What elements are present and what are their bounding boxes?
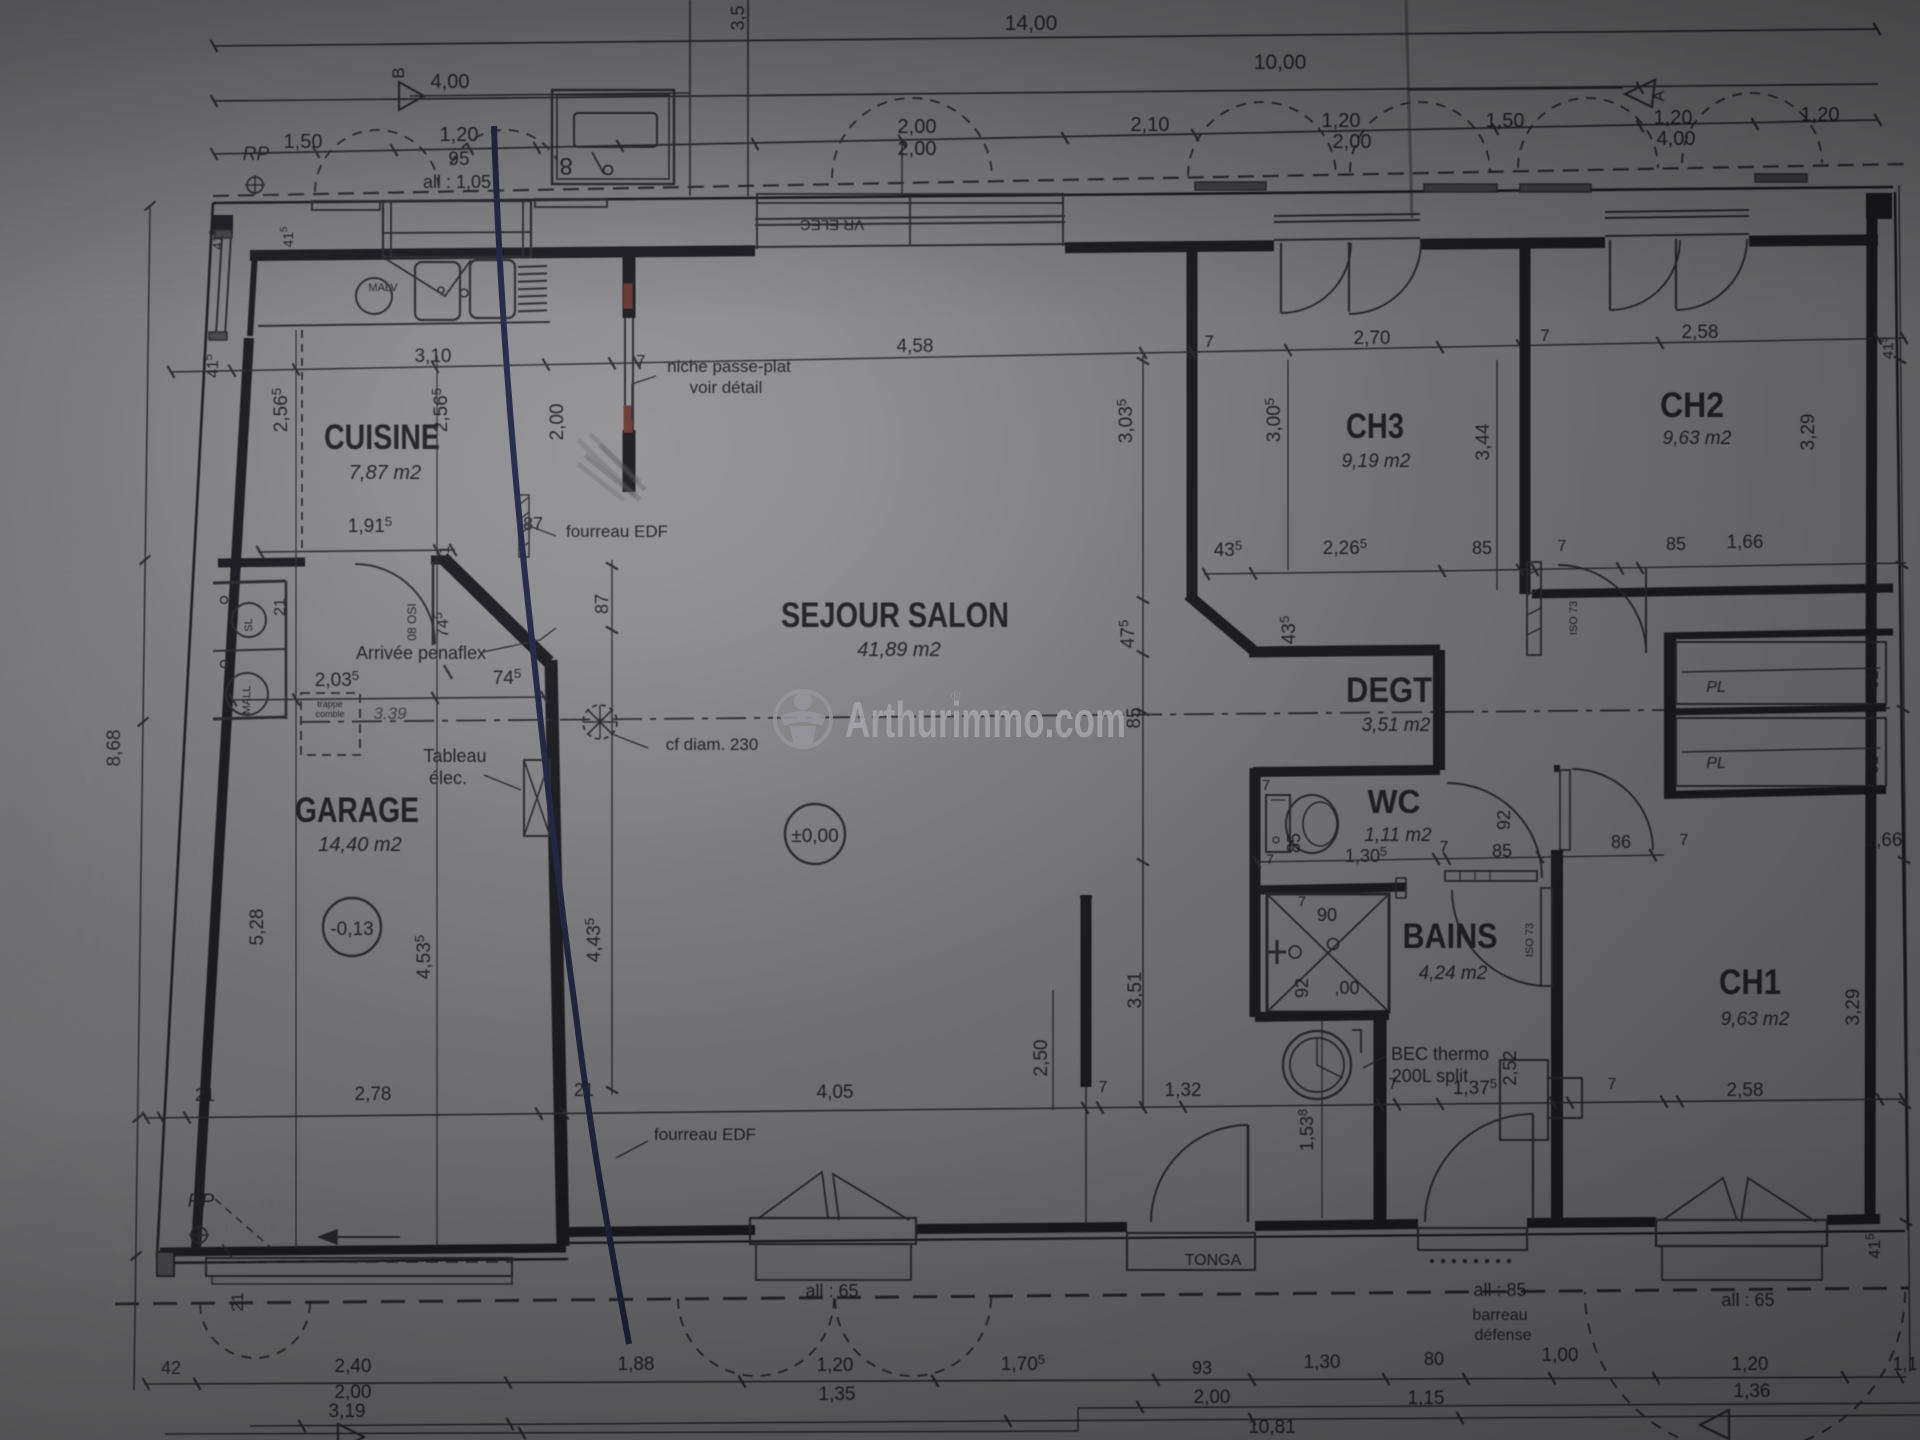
svg-text:®: ® — [951, 688, 961, 703]
svg-text:Arthurimmo.com: Arthurimmo.com — [845, 692, 1126, 748]
